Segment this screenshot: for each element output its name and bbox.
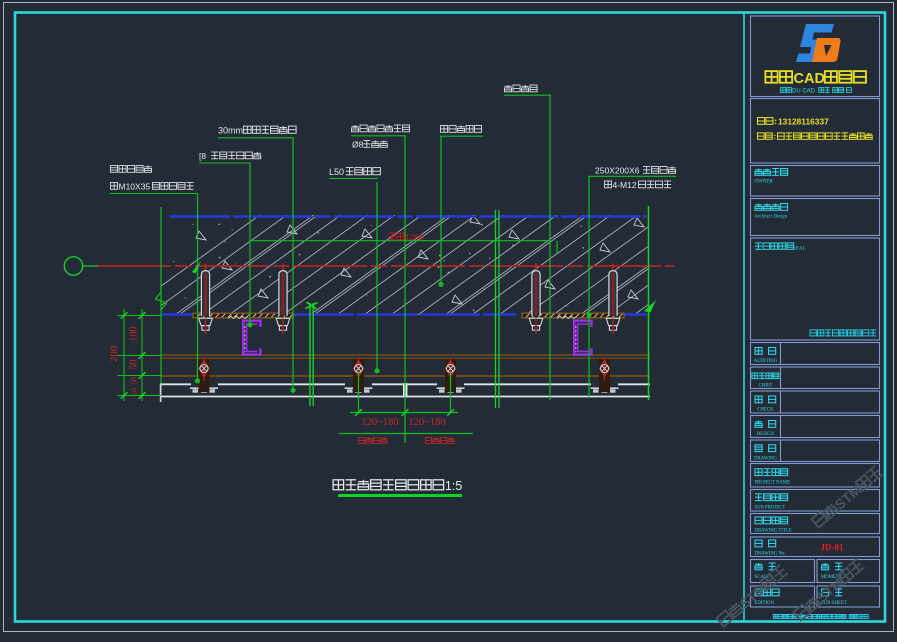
svg-text:120~180: 120~180 <box>361 417 398 428</box>
svg-text:PROJECT NAME: PROJECT NAME <box>755 480 791 485</box>
svg-text:DU CAD: DU CAD <box>792 89 816 95</box>
svg-text:50: 50 <box>129 360 140 370</box>
svg-text:DRAWING No.: DRAWING No. <box>755 552 786 557</box>
svg-text:OWNER: OWNER <box>755 180 774 185</box>
svg-text:DRAWING TITLE: DRAWING TITLE <box>755 529 792 534</box>
svg-text:SEAL: SEAL <box>793 247 806 252</box>
svg-text:Ø8: Ø8 <box>352 140 364 150</box>
svg-text:AUDITING: AUDITING <box>754 359 778 364</box>
svg-text:4-M12: 4-M12 <box>613 180 637 190</box>
svg-text:50: 50 <box>130 377 139 385</box>
svg-text:[8: [8 <box>199 151 206 161</box>
svg-text:CHECK: CHECK <box>757 408 774 413</box>
svg-text:Architect Design: Architect Design <box>755 215 788 220</box>
svg-text:SUB PROJECT: SUB PROJECT <box>755 505 786 510</box>
svg-text:200: 200 <box>108 345 120 362</box>
svg-text:1200: 1200 <box>405 232 424 242</box>
svg-text:M10X35: M10X35 <box>119 182 151 192</box>
svg-text:CAD: CAD <box>794 71 825 87</box>
svg-text:1:5: 1:5 <box>445 479 462 493</box>
svg-text:30mm: 30mm <box>218 126 243 136</box>
svg-text:DESIGN: DESIGN <box>757 432 775 437</box>
svg-text:120~180: 120~180 <box>408 417 445 428</box>
svg-text:10: 10 <box>130 388 139 396</box>
svg-text:DRAWING: DRAWING <box>754 456 777 461</box>
svg-text:CHIEF: CHIEF <box>759 383 773 388</box>
svg-text:100: 100 <box>129 327 140 342</box>
svg-text:13128116337: 13128116337 <box>778 117 829 127</box>
svg-text:250X200X6: 250X200X6 <box>595 166 640 176</box>
svg-text:L50: L50 <box>329 167 344 177</box>
svg-text:JD-01: JD-01 <box>821 543 844 553</box>
